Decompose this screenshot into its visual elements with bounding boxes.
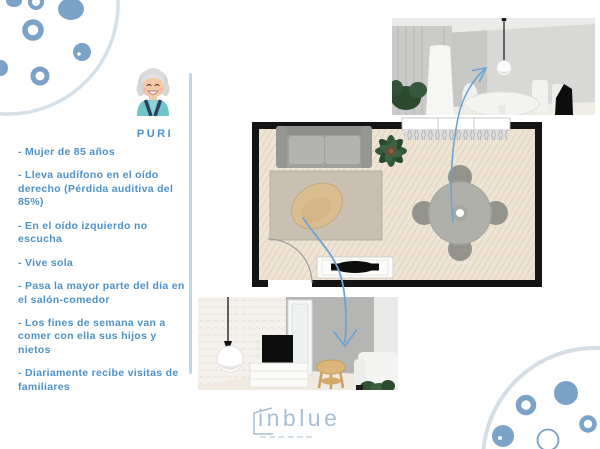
brand-logo-text: inblue [258, 405, 340, 432]
vertical-divider [189, 73, 192, 374]
presentation-slide: PURI - Mujer de 85 años - Lleva audífono… [0, 0, 600, 449]
logo-tagline [260, 436, 312, 438]
tv-stand-shape [250, 363, 308, 387]
persona-fact: - Los fines de semana van a comer con el… [18, 317, 188, 357]
persona-fact: - Mujer de 85 años [18, 146, 188, 159]
dining-area-render [392, 18, 595, 115]
stool-shape [317, 360, 346, 389]
tv-area-render [198, 297, 398, 390]
persona-fact: - Pasa la mayor parte del día en el saló… [18, 280, 188, 307]
sofa-shape [276, 126, 372, 168]
decor-circles-bottom-right-icon [465, 315, 600, 449]
floor-plan-diagram [252, 113, 542, 288]
plant-shape [375, 135, 407, 167]
persona-fact: - Diariamente recibe visitas de familiar… [18, 367, 188, 394]
tv-unit-shape [317, 257, 393, 278]
persona-fact: - Vive sola [18, 257, 188, 270]
brand-logo: inblue [245, 403, 355, 443]
elderly-woman-avatar-icon [129, 66, 177, 116]
persona-fact: - En el oído izquierdo no escucha [18, 220, 188, 247]
persona-fact: - Lleva audífono en el oído derecho (Pér… [18, 169, 188, 209]
persona-facts-list: - Mujer de 85 años - Lleva audífono en e… [18, 146, 188, 404]
persona-name: PURI [128, 128, 182, 140]
window [402, 118, 510, 140]
